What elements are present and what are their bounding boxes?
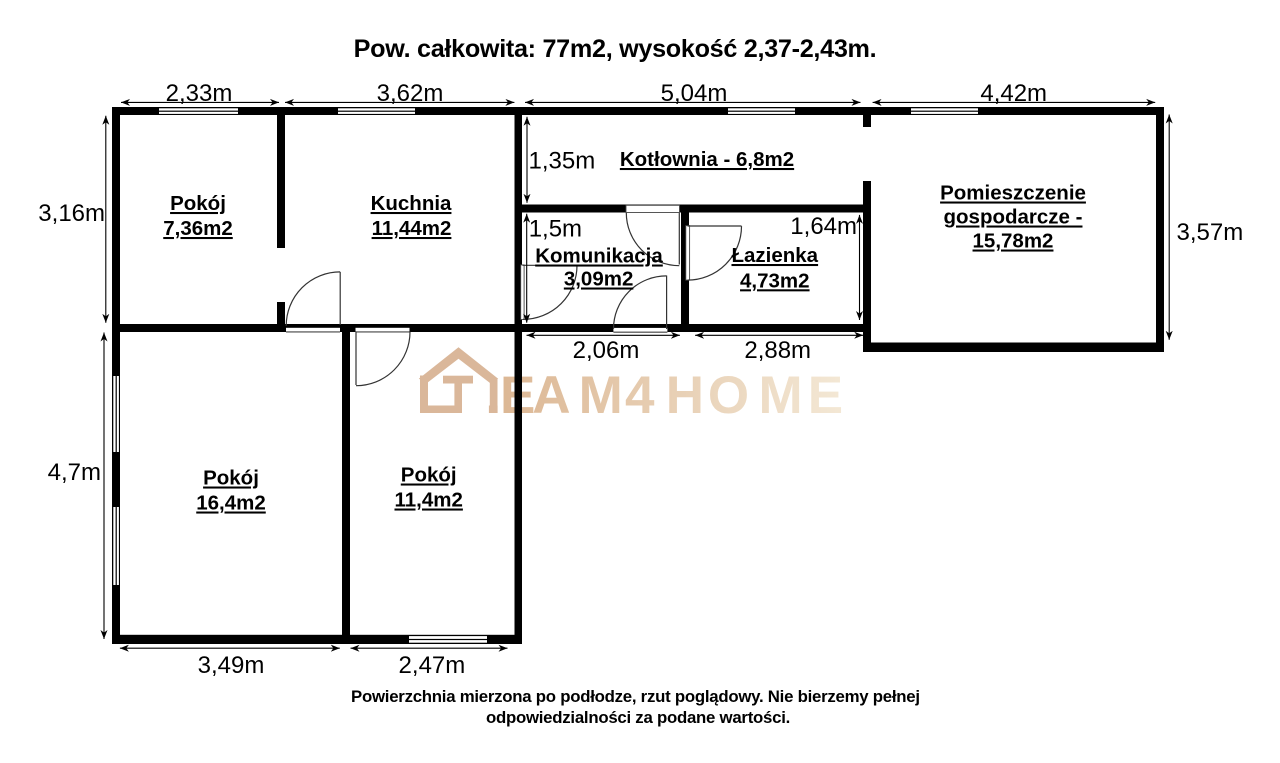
- svg-text:3,49m: 3,49m: [198, 652, 265, 679]
- svg-text:1,35m: 1,35m: [529, 148, 596, 175]
- svg-text:3,09m2: 3,09m2: [564, 268, 634, 291]
- svg-text:16,4m2: 16,4m2: [196, 492, 266, 515]
- svg-text:gospodarcze -: gospodarcze -: [944, 206, 1083, 229]
- svg-text:Pomieszczenie: Pomieszczenie: [940, 182, 1086, 205]
- svg-text:Pokój: Pokój: [170, 192, 226, 215]
- svg-text:4,73m2: 4,73m2: [740, 269, 810, 292]
- svg-text:Kotłownia - 6,8m2: Kotłownia - 6,8m2: [620, 148, 794, 171]
- svg-text:3,62m: 3,62m: [377, 80, 444, 107]
- svg-text:1,64m: 1,64m: [790, 213, 857, 240]
- svg-text:3,16m: 3,16m: [38, 200, 105, 227]
- svg-text:7,36m2: 7,36m2: [163, 217, 233, 240]
- svg-text:Komunikacja: Komunikacja: [535, 245, 663, 268]
- svg-text:Łazienka: Łazienka: [731, 244, 818, 267]
- svg-text:odpowiedzialności za podane wa: odpowiedzialności za podane wartości.: [486, 708, 790, 727]
- svg-text:Kuchnia: Kuchnia: [371, 192, 452, 215]
- svg-text:Pokój: Pokój: [401, 464, 457, 487]
- svg-text:11,4m2: 11,4m2: [394, 489, 462, 512]
- svg-text:3,57m: 3,57m: [1177, 219, 1244, 246]
- svg-text:2,88m: 2,88m: [744, 337, 811, 364]
- svg-text:EAM4HOME: EAM4HOME: [500, 366, 843, 425]
- svg-text:5,04m: 5,04m: [661, 80, 728, 107]
- svg-text:1,5m: 1,5m: [529, 216, 582, 243]
- svg-text:15,78m2: 15,78m2: [973, 230, 1054, 253]
- svg-text:2,47m: 2,47m: [399, 652, 466, 679]
- svg-text:4,42m: 4,42m: [980, 80, 1047, 107]
- svg-text:2,06m: 2,06m: [573, 337, 640, 364]
- svg-text:Pow. całkowita: 77m2, wysokość: Pow. całkowita: 77m2, wysokość 2,37-2,43…: [354, 35, 877, 63]
- svg-text:11,44m2: 11,44m2: [372, 217, 452, 240]
- svg-text:Powierzchnia mierzona po podło: Powierzchnia mierzona po podłodze, rzut …: [351, 687, 920, 706]
- svg-text:2,33m: 2,33m: [166, 80, 233, 107]
- svg-text:Pokój: Pokój: [203, 467, 259, 490]
- svg-text:4,7m: 4,7m: [48, 459, 101, 486]
